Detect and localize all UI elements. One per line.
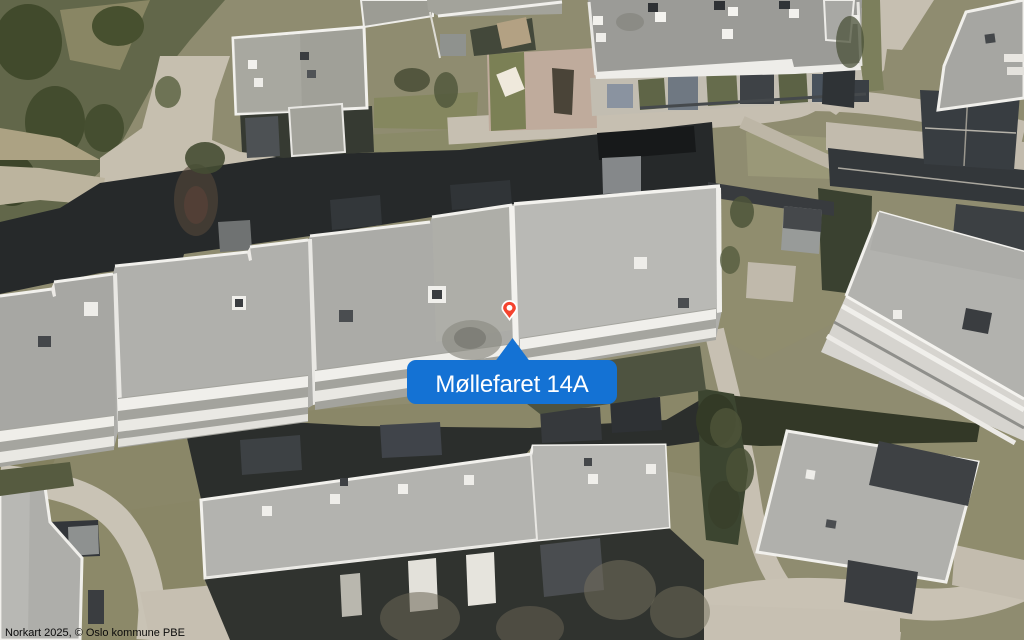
svg-text:Møllefaret 14A: Møllefaret 14A bbox=[435, 371, 588, 398]
